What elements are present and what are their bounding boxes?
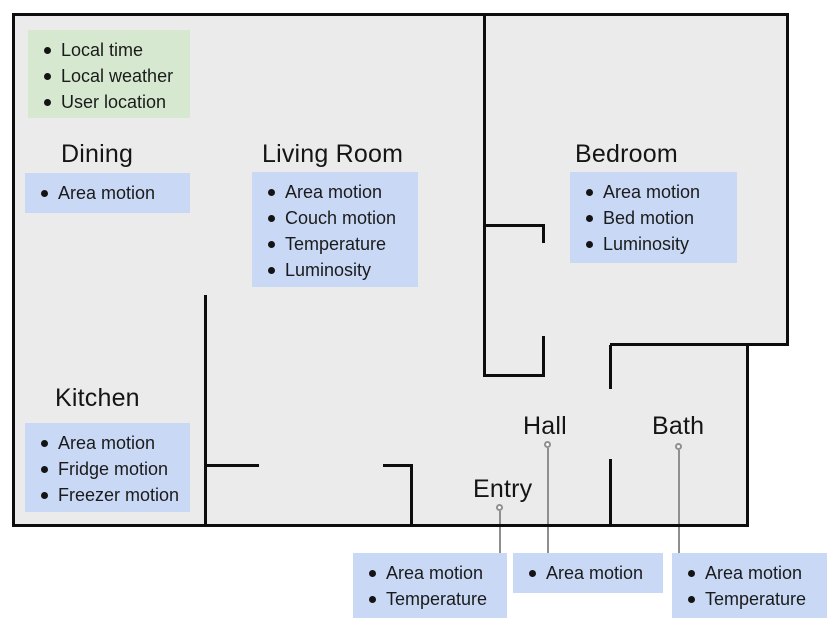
bullet-icon: [369, 570, 376, 577]
sensor-item-label: Area motion: [285, 182, 382, 203]
sensor-list-hall: Area motion: [513, 553, 663, 593]
sensor-item-label: Bed motion: [603, 208, 694, 229]
list-item: Temperature: [680, 586, 819, 612]
bullet-icon: [586, 189, 593, 196]
bullet-icon: [41, 492, 48, 499]
bath-leader-dot: [675, 443, 682, 450]
hall-leader-line: [547, 448, 549, 553]
sensor-item-label: Area motion: [58, 433, 155, 454]
sensor-list-dining: Area motion: [25, 173, 190, 213]
bullet-icon: [268, 215, 275, 222]
bullet-icon: [44, 99, 51, 106]
wall-entry-stub-horizontal: [383, 464, 413, 467]
wall-bottom: [12, 524, 749, 527]
room-title-entry: Entry: [473, 475, 532, 504]
bullet-icon: [44, 73, 51, 80]
wall-kitchen: [204, 295, 207, 527]
sensor-item-label: Temperature: [285, 234, 386, 255]
wall-doorjamb-bottom: [483, 374, 545, 377]
hall-leader-dot: [544, 441, 551, 448]
bullet-icon: [268, 189, 275, 196]
wall-living-bedroom: [483, 13, 486, 377]
wall-doorjamb-top-tick: [542, 224, 545, 243]
sensor-list-bedroom: Area motion Bed motion Luminosity: [570, 172, 737, 263]
room-title-bedroom: Bedroom: [575, 140, 678, 169]
sensor-item-label: Temperature: [386, 589, 487, 610]
wall-right-lower: [746, 343, 749, 527]
sensor-item-label: Temperature: [705, 589, 806, 610]
room-title-bath: Bath: [652, 412, 704, 441]
bath-leader-line: [678, 450, 680, 553]
list-item: Temperature: [260, 231, 410, 257]
list-item: Fridge motion: [33, 456, 182, 482]
wall-left: [12, 13, 15, 527]
global-item-label: Local time: [61, 40, 143, 61]
sensor-item-label: Area motion: [58, 183, 155, 204]
sensor-list-kitchen: Area motion Fridge motion Freezer motion: [25, 423, 190, 512]
bullet-icon: [44, 47, 51, 54]
sensor-item-label: Luminosity: [285, 260, 371, 281]
room-title-dining: Dining: [61, 140, 133, 169]
sensor-item-label: Luminosity: [603, 234, 689, 255]
bullet-icon: [41, 440, 48, 447]
wall-doorjamb-bottom-tick: [542, 336, 545, 377]
list-item: Area motion: [361, 560, 499, 586]
sensor-list-living-room: Area motion Couch motion Temperature Lum…: [252, 172, 418, 287]
sensor-item-label: Area motion: [546, 563, 643, 584]
global-context-box: Local time Local weather User location: [28, 30, 190, 118]
list-item: Area motion: [521, 560, 655, 586]
floor-plan-diagram: Local time Local weather User location D…: [0, 0, 830, 628]
global-item-label: Local weather: [61, 66, 173, 87]
wall-kitchen-door-stub: [204, 464, 259, 467]
bullet-icon: [268, 267, 275, 274]
bullet-icon: [369, 596, 376, 603]
global-item-label: User location: [61, 92, 166, 113]
bullet-icon: [586, 215, 593, 222]
sensor-item-label: Couch motion: [285, 208, 396, 229]
list-item: Area motion: [260, 179, 410, 205]
sensor-item-label: Area motion: [603, 182, 700, 203]
list-item: Freezer motion: [33, 482, 182, 508]
sensor-item-label: Area motion: [386, 563, 483, 584]
wall-doorjamb-top: [483, 224, 545, 227]
list-item: Local weather: [36, 63, 182, 89]
wall-right-upper: [786, 13, 789, 346]
bullet-icon: [268, 241, 275, 248]
wall-hall-bath-lower: [609, 459, 612, 527]
list-item: Temperature: [361, 586, 499, 612]
list-item: Couch motion: [260, 205, 410, 231]
bullet-icon: [688, 570, 695, 577]
sensor-item-label: Freezer motion: [58, 485, 179, 506]
list-item: Area motion: [33, 430, 182, 456]
list-item: User location: [36, 89, 182, 115]
bullet-icon: [41, 190, 48, 197]
bullet-icon: [41, 466, 48, 473]
room-title-kitchen: Kitchen: [55, 384, 140, 413]
list-item: Area motion: [33, 180, 182, 206]
sensor-list-entry: Area motion Temperature: [353, 553, 507, 618]
bullet-icon: [529, 570, 536, 577]
entry-leader-line: [499, 511, 501, 553]
wall-top: [12, 13, 789, 16]
list-item: Local time: [36, 37, 182, 63]
list-item: Area motion: [578, 179, 729, 205]
wall-step-horizontal: [610, 343, 789, 346]
sensor-list-bath: Area motion Temperature: [672, 553, 827, 618]
list-item: Luminosity: [260, 257, 410, 283]
room-title-hall: Hall: [523, 412, 567, 441]
bullet-icon: [586, 241, 593, 248]
sensor-item-label: Area motion: [705, 563, 802, 584]
room-title-living-room: Living Room: [262, 140, 403, 169]
list-item: Area motion: [680, 560, 819, 586]
wall-entry-stub-vertical: [410, 464, 413, 527]
bullet-icon: [688, 596, 695, 603]
entry-leader-dot: [496, 504, 503, 511]
sensor-item-label: Fridge motion: [58, 459, 168, 480]
wall-hall-bath-upper: [609, 345, 612, 389]
list-item: Luminosity: [578, 231, 729, 257]
list-item: Bed motion: [578, 205, 729, 231]
